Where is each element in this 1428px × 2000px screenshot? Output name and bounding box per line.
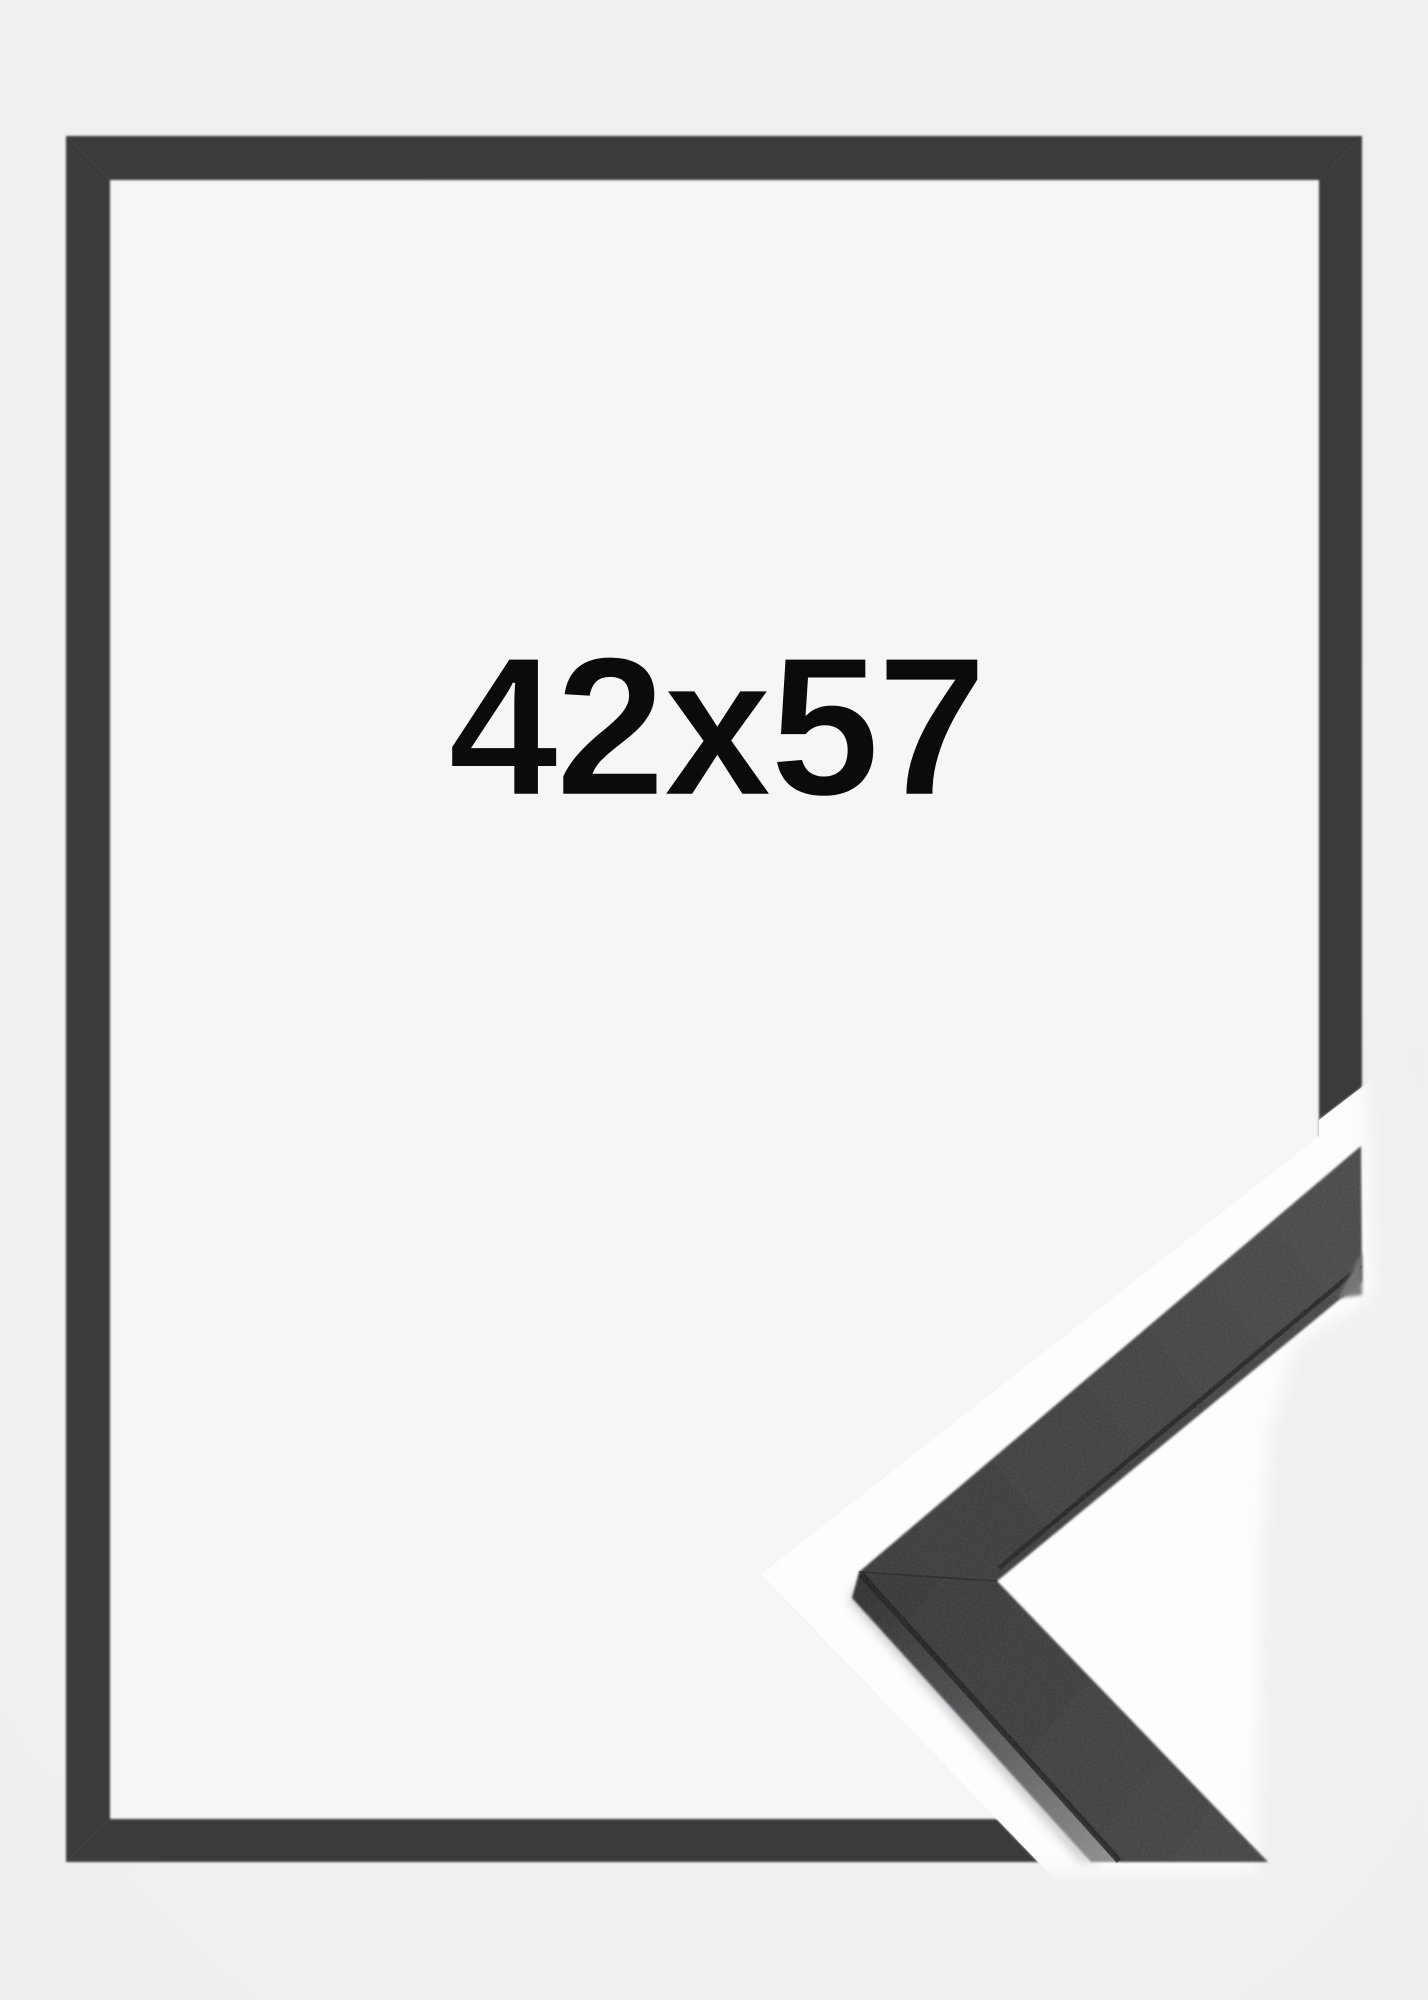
svg-text:42x57: 42x57 xyxy=(448,616,984,838)
